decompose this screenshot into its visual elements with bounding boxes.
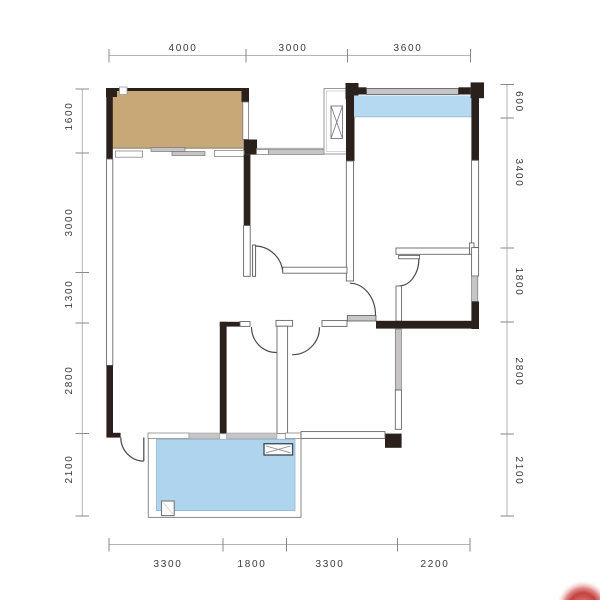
svg-text:1800: 1800 <box>513 267 524 296</box>
svg-text:3000: 3000 <box>64 207 75 236</box>
svg-text:3600: 3600 <box>393 43 422 54</box>
svg-text:1600: 1600 <box>64 101 75 130</box>
svg-text:3300: 3300 <box>153 559 182 570</box>
svg-text:3300: 3300 <box>315 559 344 570</box>
svg-text:4000: 4000 <box>168 43 197 54</box>
svg-text:2200: 2200 <box>420 559 449 570</box>
svg-text:2800: 2800 <box>513 357 524 386</box>
svg-text:3000: 3000 <box>278 43 307 54</box>
svg-text:2800: 2800 <box>64 365 75 394</box>
svg-text:600: 600 <box>513 91 524 113</box>
svg-text:2100: 2100 <box>513 456 524 485</box>
svg-text:3400: 3400 <box>513 158 524 187</box>
svg-text:1300: 1300 <box>64 279 75 308</box>
svg-text:2100: 2100 <box>64 454 75 483</box>
svg-text:1800: 1800 <box>237 559 266 570</box>
